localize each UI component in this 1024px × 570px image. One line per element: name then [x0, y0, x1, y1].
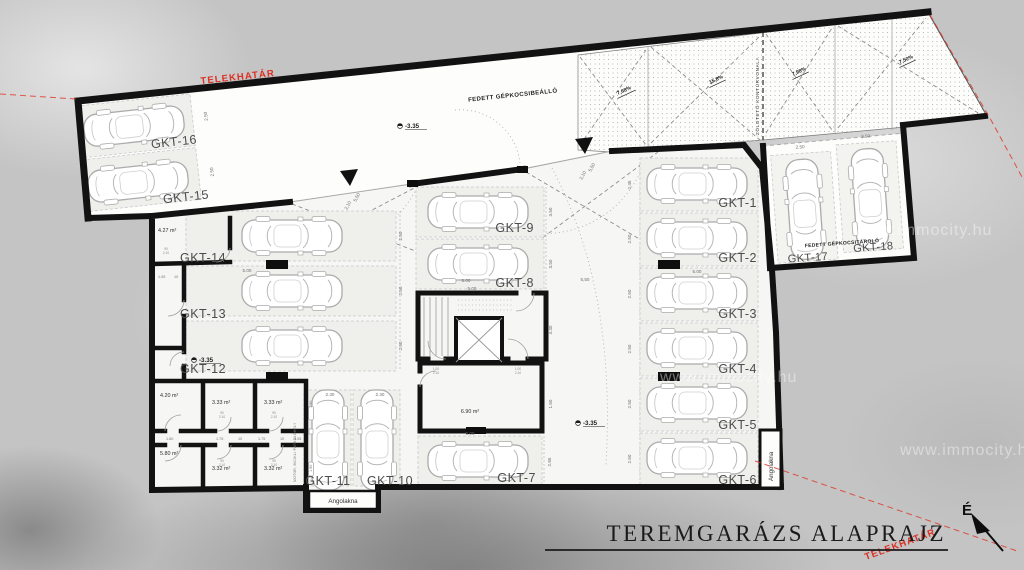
dim: 2.30	[376, 392, 385, 397]
door-height: 2.10	[515, 371, 521, 375]
stall-label-gkt7: GKT-7	[497, 471, 536, 485]
dim: 2.65	[547, 457, 552, 466]
stall-label-gkt5: GKT-5	[718, 418, 757, 432]
room-area: 3.33 m²	[264, 400, 282, 406]
dim: 2.50	[627, 399, 632, 408]
dim: 5.00	[468, 286, 477, 291]
dim: 4.30	[548, 325, 553, 334]
stall-label-gkt14: GKT-14	[180, 251, 226, 265]
stall-label-gkt2: GKT-2	[718, 251, 757, 265]
car-gkt12	[242, 327, 342, 366]
dim: 5,50	[581, 277, 590, 282]
car-gkt5	[647, 384, 747, 423]
stall-label-gkt6: GKT-6	[718, 473, 757, 487]
ramp-hatch-area	[578, 13, 988, 152]
dim: 2.50	[398, 286, 403, 295]
room-area: 3.33 m²	[212, 400, 230, 406]
room-area: 5.80 m²	[160, 451, 178, 457]
dim: 3.50	[548, 207, 553, 216]
dim: 1.75	[216, 437, 223, 441]
drawing-title: TEREMGARÁZS ALAPRAJZ	[607, 521, 946, 546]
dim: 2.50	[861, 133, 871, 139]
dim: 5.00	[466, 431, 475, 436]
dim: 5.00	[462, 278, 471, 283]
dim: 1.05	[158, 275, 165, 279]
stall-label-gkt10: GKT-10	[367, 474, 413, 488]
stall-label-gkt12: GKT-12	[180, 362, 226, 376]
dim: 2.50	[398, 341, 403, 350]
door-height: 2.10	[163, 251, 169, 255]
light-well-label-bottom: Angolakna	[328, 498, 358, 505]
room-area: 4.20 m²	[160, 393, 178, 399]
watermark-text: www.immocity.hu	[899, 442, 1024, 459]
dim: 5.00	[243, 268, 252, 273]
dim: 2.50	[203, 111, 209, 121]
stall-label-gkt11: GKT-11	[305, 474, 350, 488]
floor-plan-drawing: GKT-16 GKT-15 2.50 2.50 5.00 2.50 2.50 F…	[0, 0, 1024, 570]
dim: 2.50	[627, 344, 632, 353]
door-height: 2.10	[271, 415, 277, 419]
garage-floor-plan-page: GKT-16 GKT-15 2.50 2.50 5.00 2.50 2.50 F…	[0, 0, 1024, 570]
dim: 1.80	[166, 437, 173, 441]
car-gkt6	[647, 439, 747, 478]
dim: 2.50	[209, 167, 215, 177]
north-label: É	[962, 502, 972, 519]
dim: 2.50	[627, 234, 632, 243]
door-height: 2.10	[219, 415, 225, 419]
stall-label-gkt9: GKT-9	[495, 221, 534, 235]
car-gkt13	[242, 272, 342, 311]
level-value: -3.35	[583, 420, 598, 427]
stall-label-gkt13: GKT-13	[180, 307, 226, 321]
dim: 1.50	[548, 399, 553, 408]
watermark-text: www.immocity.hu	[689, 49, 827, 66]
dim: 2.50	[627, 289, 632, 298]
dim: 3.50	[548, 259, 553, 268]
room-area: 4.27 m²	[158, 228, 176, 234]
watermark-text: www.immocity.hu	[659, 369, 797, 386]
stall-label-gkt3: GKT-3	[718, 307, 757, 321]
car-gkt14	[242, 217, 342, 256]
dim: 10	[280, 437, 284, 441]
dim: 2.30	[326, 392, 335, 397]
stall-label-gkt1: GKT-1	[718, 196, 757, 210]
dim: 2.50	[627, 454, 632, 463]
door-height: 2.10	[433, 371, 439, 375]
dim: 5.00	[693, 269, 702, 274]
dim: 1.90	[309, 401, 313, 408]
dim: 2.45	[627, 180, 632, 189]
room-area: 6.90 m²	[461, 409, 479, 415]
watermark-text: www.immocity.hu	[854, 222, 992, 239]
dim: 2.50	[796, 144, 806, 150]
dim: 10	[174, 275, 178, 279]
stall-label-gkt8: GKT-8	[495, 276, 534, 290]
moto-parking-label: MOTOR, BICIKLI PARKOLÓHELY	[292, 422, 297, 482]
dim: 1.05	[294, 437, 301, 441]
dim: 10	[238, 437, 242, 441]
dim: 1.90	[309, 465, 313, 472]
level-value: -3.35	[405, 123, 420, 130]
door-height: 2.10	[271, 463, 277, 467]
level-value: -3.35	[199, 357, 214, 364]
dim: 1.75	[258, 437, 265, 441]
dim: 2.50	[398, 231, 403, 240]
green-roof-contour-label: ZÖLDTETŐ KONTÚRVONALA	[754, 56, 760, 135]
door-height: 2.10	[219, 463, 225, 467]
north-arrow: É	[962, 502, 1003, 551]
